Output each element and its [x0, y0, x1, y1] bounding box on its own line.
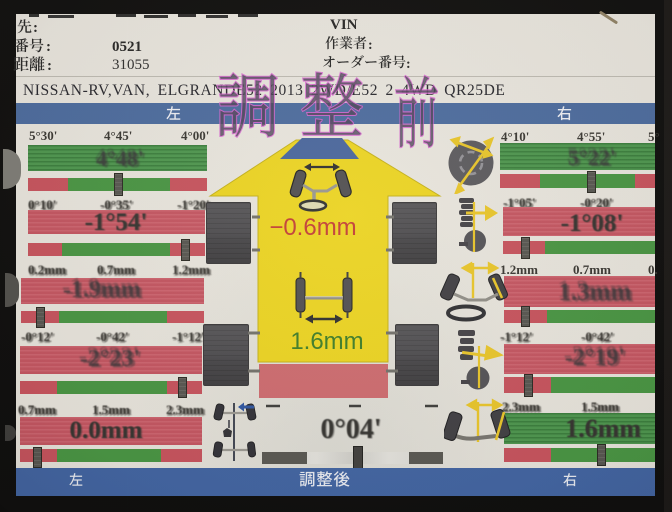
svg-text::: :: [46, 39, 51, 55]
svg-text::: :: [368, 38, 373, 53]
svg-text::: :: [33, 20, 38, 36]
svg-text::: :: [47, 58, 52, 74]
svg-text::: :: [406, 57, 411, 72]
